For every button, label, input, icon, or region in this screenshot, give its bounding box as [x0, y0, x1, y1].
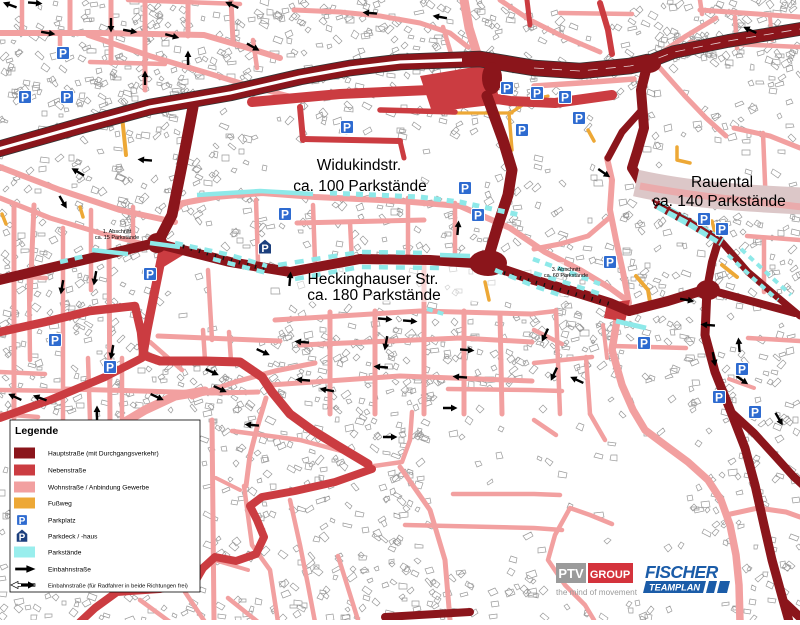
svg-text:ca. 140 Parkstände: ca. 140 Parkstände — [652, 193, 786, 210]
svg-text:Parkstände: Parkstände — [48, 550, 82, 557]
svg-text:Widukindstr.: Widukindstr. — [317, 157, 401, 174]
svg-text:GROUP: GROUP — [590, 569, 630, 581]
svg-text:Einbahnstraße (für Radfahrer i: Einbahnstraße (für Radfahrer in beide Ri… — [48, 584, 188, 590]
svg-text:Heckinghauser Str.: Heckinghauser Str. — [308, 271, 439, 288]
svg-text:Parkplatz: Parkplatz — [48, 518, 76, 525]
svg-text:FISCHER: FISCHER — [645, 562, 719, 582]
svg-text:Hauptstraße (mit Durchgangsver: Hauptstraße (mit Durchgangsverkehr) — [48, 451, 159, 458]
svg-text:the mind of movement: the mind of movement — [556, 588, 638, 597]
svg-text:Legende: Legende — [15, 425, 58, 437]
svg-text:ca. 180 Parkstände: ca. 180 Parkstände — [307, 287, 441, 304]
svg-text:Fußweg: Fußweg — [48, 501, 72, 508]
svg-text:Wohnstraße / Anbindung Gewerbe: Wohnstraße / Anbindung Gewerbe — [48, 485, 149, 492]
svg-text:ca. 100 Parkstände: ca. 100 Parkstände — [293, 178, 427, 195]
svg-text:Nebenstraße: Nebenstraße — [48, 468, 86, 475]
svg-text:Einbahnstraße: Einbahnstraße — [48, 567, 91, 574]
svg-text:ca. 60 Parkstände: ca. 60 Parkstände — [544, 273, 588, 279]
svg-text:PTV: PTV — [558, 566, 584, 581]
svg-text:TEAMPLAN: TEAMPLAN — [649, 583, 700, 593]
svg-text:Rauental: Rauental — [691, 174, 753, 191]
svg-text:ca. 15 Parkstände: ca. 15 Parkstände — [95, 235, 139, 241]
svg-text:Parkdeck / -haus: Parkdeck / -haus — [48, 534, 98, 541]
